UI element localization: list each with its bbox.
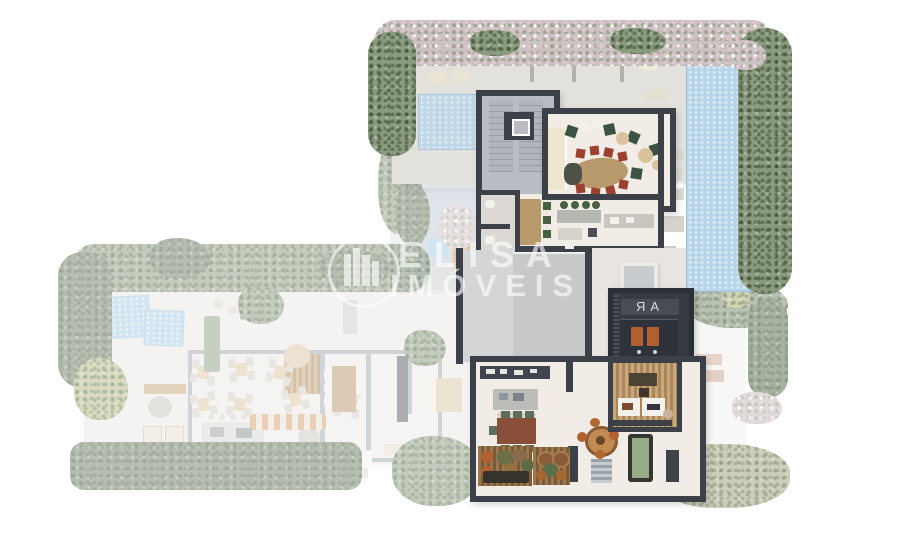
green-pouf xyxy=(630,167,642,179)
wing-green-bench xyxy=(204,316,220,372)
orange-pouf xyxy=(481,451,493,463)
round-table-center xyxy=(596,436,605,445)
white-chair xyxy=(579,121,590,132)
table-chair xyxy=(489,426,497,435)
stair-landing-core xyxy=(512,119,530,136)
sauna-lounger xyxy=(647,327,659,346)
watermark-building-bars-icon xyxy=(372,261,379,286)
wing-pouf xyxy=(284,344,310,368)
counter-item xyxy=(486,369,495,374)
table-end-seat xyxy=(564,163,582,185)
wall xyxy=(566,358,573,392)
billiard-felt xyxy=(632,438,649,478)
red-chair xyxy=(617,151,627,161)
island-sink xyxy=(499,393,508,400)
sauna-glass: ЯA xyxy=(621,299,679,315)
watermark-building-bars-icon xyxy=(353,248,360,286)
wing-bed xyxy=(430,378,462,412)
hedge-top-green xyxy=(610,28,666,54)
deck-sofa xyxy=(483,471,529,483)
table-chair xyxy=(525,411,534,418)
hedge-right-flowers xyxy=(726,40,766,70)
terrace-table xyxy=(645,90,667,100)
sauna-slat-edge xyxy=(613,295,619,357)
wing-kitchen-counter xyxy=(397,356,408,422)
wing-tree xyxy=(238,286,284,324)
red-chair xyxy=(575,148,585,158)
wing-bush-bottom xyxy=(392,436,482,506)
wing-wood-bench xyxy=(144,384,186,394)
orange-chair xyxy=(595,450,605,459)
terrace-lounger xyxy=(452,70,470,82)
wing-chair xyxy=(324,398,331,406)
bar-stool xyxy=(571,201,579,209)
red-chair xyxy=(575,183,585,193)
desk xyxy=(629,373,657,386)
orange-chair xyxy=(536,470,546,480)
wing-tree xyxy=(404,330,446,366)
bar-counter xyxy=(557,210,601,223)
gourmet-table xyxy=(497,418,536,444)
green-pouf xyxy=(603,123,616,136)
right-garden-hedge xyxy=(748,298,788,398)
terrace-lounger xyxy=(428,72,446,84)
orange-chair xyxy=(577,432,587,442)
deck-patio xyxy=(533,447,570,485)
green-chair xyxy=(543,216,551,224)
cafe-table-set xyxy=(235,362,247,376)
round-pouf xyxy=(616,132,629,145)
watermark-brand-line2: IMÓVEIS xyxy=(390,268,582,304)
wing-chair xyxy=(358,370,365,378)
wing-striped-lounger xyxy=(250,414,326,430)
hedge-left xyxy=(368,32,416,156)
table-chair xyxy=(501,411,510,418)
table-chair xyxy=(513,411,522,418)
bar-stool xyxy=(592,201,600,209)
counter-item xyxy=(530,369,537,373)
flower-hedge-top xyxy=(374,20,774,66)
wing-long-table xyxy=(332,366,356,412)
poolside-table xyxy=(676,182,683,189)
watermark-building-bars-icon xyxy=(362,255,370,286)
mat-item xyxy=(622,403,633,410)
round-pouf xyxy=(638,148,653,163)
wing-hedge-bottom xyxy=(70,442,362,490)
wing-bush-yellow xyxy=(74,358,128,420)
island-cooktop xyxy=(513,393,524,401)
toilet xyxy=(485,200,495,208)
slat-bench xyxy=(591,459,612,483)
wing-chair xyxy=(358,398,365,406)
counter-item xyxy=(514,370,523,375)
wall xyxy=(476,224,510,229)
deck-patio xyxy=(478,446,532,486)
mat-item xyxy=(647,404,660,410)
desk-chair xyxy=(565,241,574,249)
sink xyxy=(610,217,619,224)
round-pouf xyxy=(663,409,673,419)
sink xyxy=(626,217,634,223)
water-feature-tile xyxy=(143,309,184,346)
wall xyxy=(658,108,664,252)
red-chair xyxy=(590,146,600,156)
wing-chair xyxy=(324,370,331,378)
patio-floor xyxy=(592,294,608,362)
cafe-table-set xyxy=(197,397,210,412)
wing-wall xyxy=(366,354,371,450)
sauna-lounger xyxy=(631,327,643,346)
sauna-light xyxy=(653,350,657,354)
wing-chair xyxy=(324,384,331,392)
hedge-top-green xyxy=(470,30,520,56)
wing-hedge-top-blob xyxy=(150,238,210,278)
right-garden-flowers xyxy=(732,392,782,424)
orange-chair xyxy=(556,470,566,480)
wing-pouf xyxy=(148,396,172,418)
red-chair xyxy=(618,179,628,189)
desk-chair xyxy=(639,388,649,397)
wing-chair xyxy=(358,384,365,392)
sauna-light xyxy=(637,350,641,354)
wing-island-stools xyxy=(208,414,214,420)
orange-chair xyxy=(590,418,600,427)
printer xyxy=(588,228,597,237)
cafe-table-set xyxy=(233,397,245,411)
green-chair xyxy=(543,202,551,210)
patio-chair xyxy=(227,305,237,314)
wall xyxy=(585,246,592,364)
watermark-building-bars-icon xyxy=(344,254,351,286)
bar-stool xyxy=(560,201,568,209)
wing-island-sink xyxy=(210,427,224,437)
wall xyxy=(542,194,664,200)
counter-item xyxy=(500,369,507,374)
bar-stool xyxy=(582,201,590,209)
floor-plan-render: ЯA xyxy=(0,0,900,539)
wall-bench xyxy=(666,450,679,482)
red-chair xyxy=(603,147,614,158)
wing-island-cooktop xyxy=(236,428,252,438)
wall xyxy=(608,420,672,426)
